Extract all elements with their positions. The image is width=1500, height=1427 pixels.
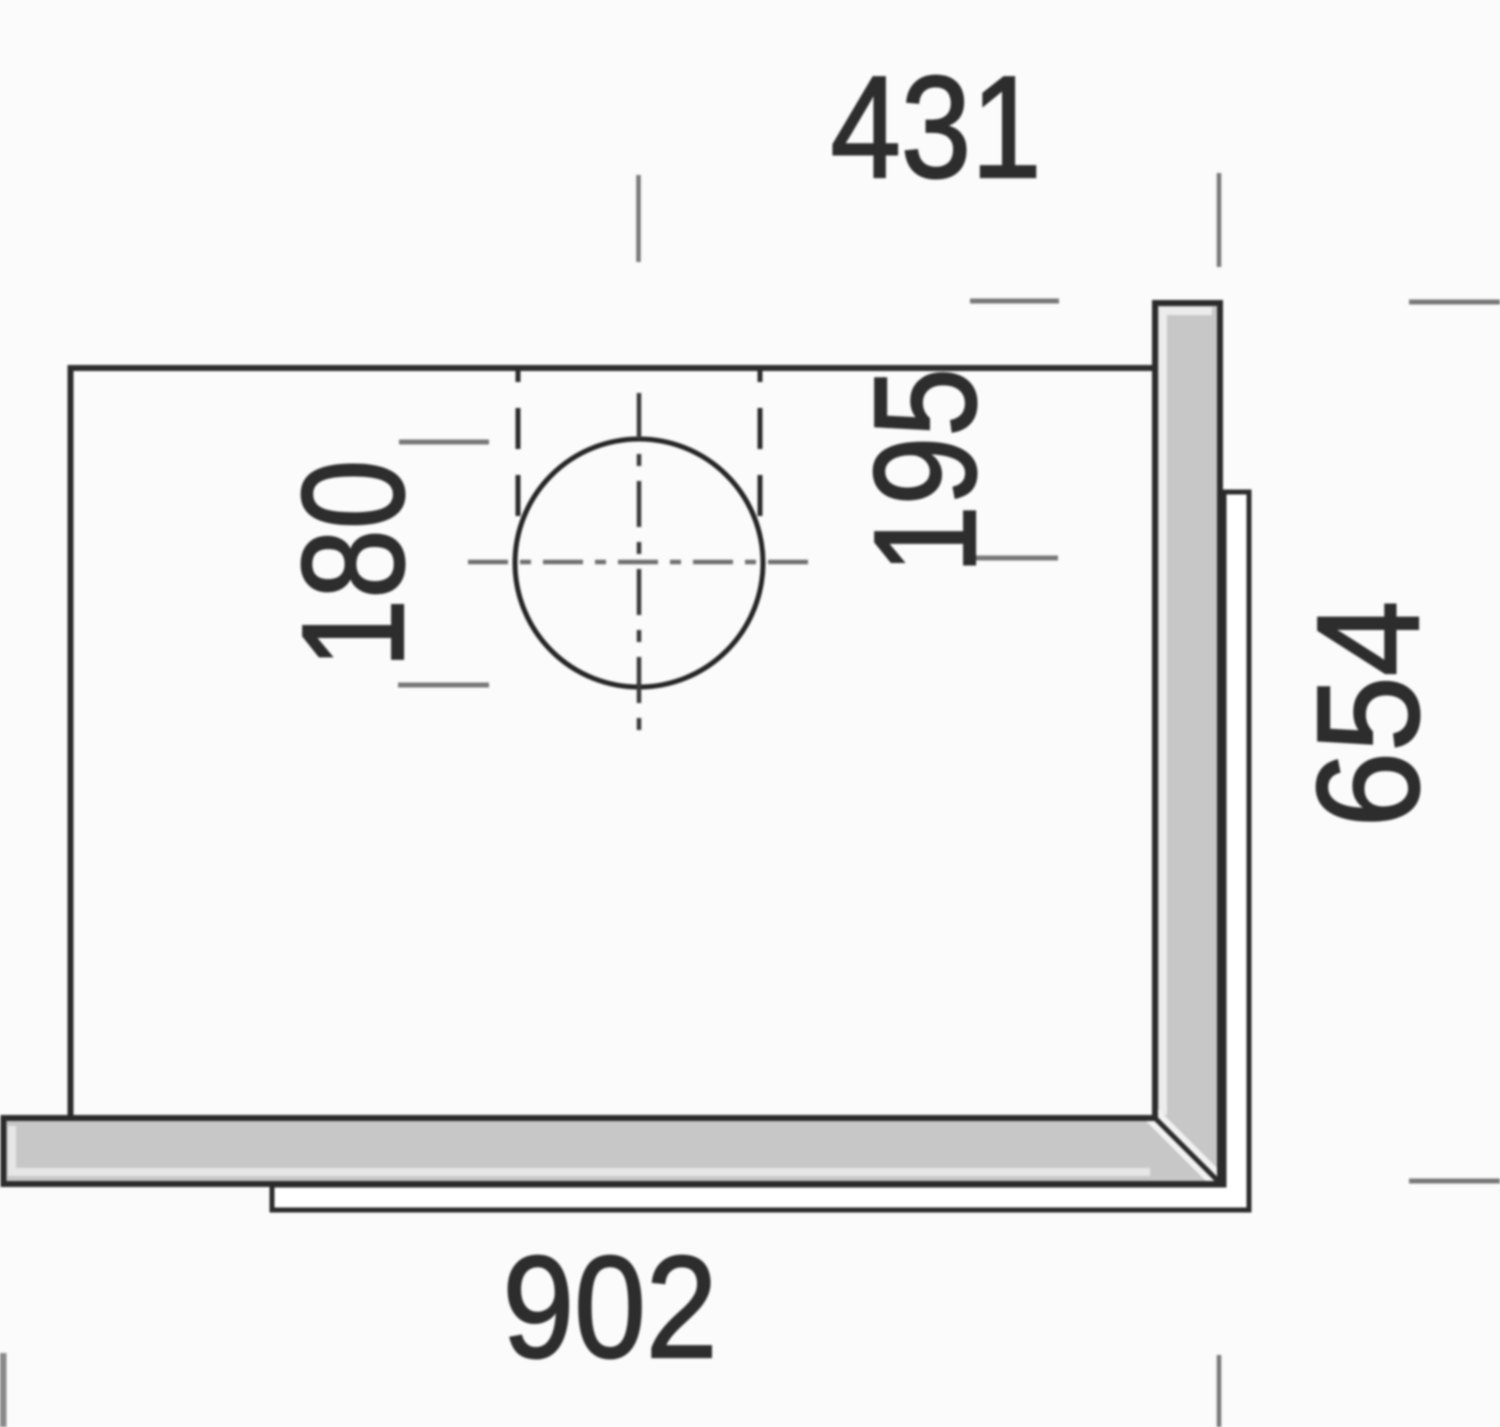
- svg-text:431: 431: [831, 46, 1042, 208]
- svg-text:180: 180: [272, 460, 434, 669]
- svg-text:195: 195: [844, 368, 1006, 574]
- svg-text:654: 654: [1287, 601, 1449, 828]
- svg-text:902: 902: [503, 1226, 718, 1388]
